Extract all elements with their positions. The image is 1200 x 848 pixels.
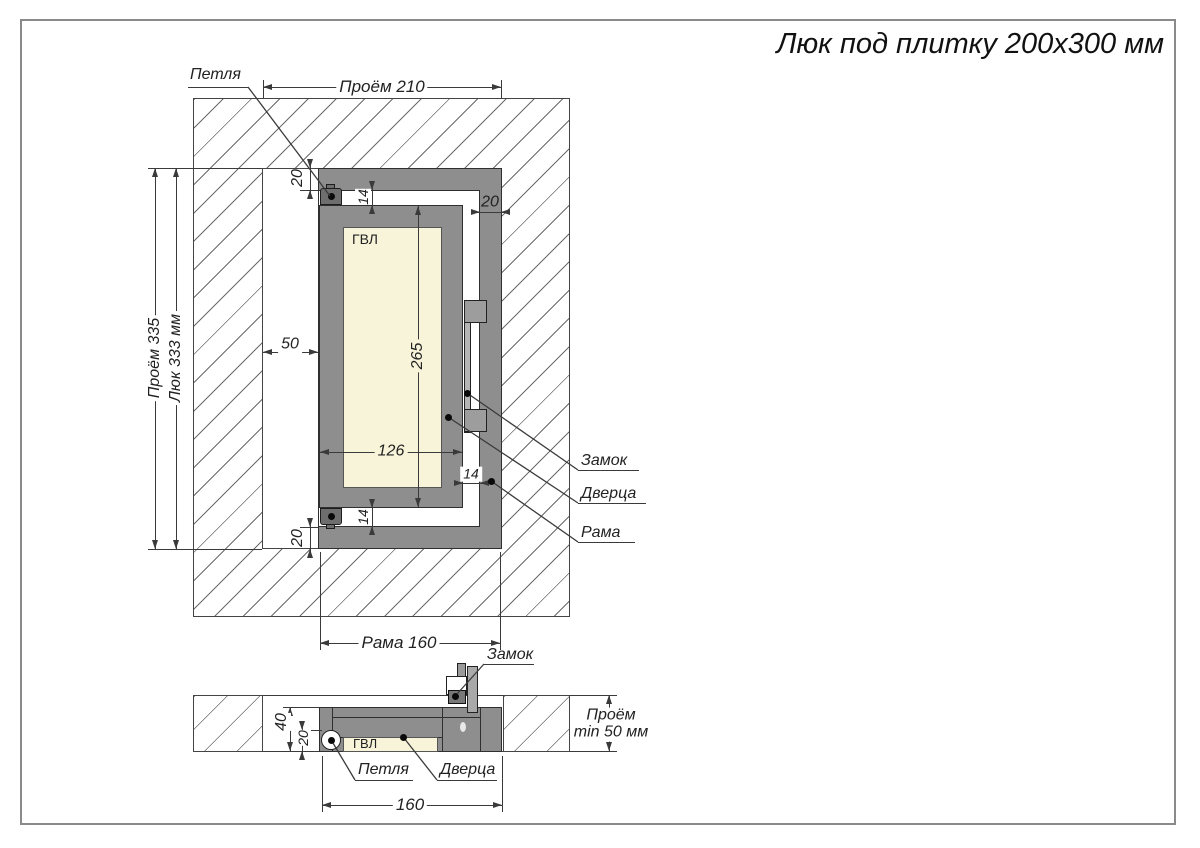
dim-arrow (299, 751, 305, 760)
dim-opening-depth-line1: Проём (583, 708, 638, 725)
drawing-title: Люк под плитку 200х300 мм (776, 28, 1164, 61)
section-detail-line (332, 717, 480, 718)
dim-arrow (173, 168, 179, 177)
lock-label-front: Замок (581, 452, 627, 470)
door-leader-dot (445, 414, 452, 421)
dim-arrow (369, 526, 375, 535)
hinge-label-section: Петля (358, 761, 409, 779)
dim-frame-profile: 20 (478, 195, 502, 212)
dim-arrow (307, 518, 313, 527)
dim-top-gap: 14 (355, 189, 371, 205)
dim-arrow (369, 205, 375, 214)
dim-arrow (415, 498, 421, 507)
ext-line (300, 527, 318, 528)
dim-arrow (263, 84, 272, 90)
dim-arrow (606, 695, 612, 704)
dim-arrow (152, 168, 158, 177)
ext-line (148, 168, 262, 169)
hinge-label-underline-section (355, 780, 413, 781)
dim-frame-width: Рама 160 (359, 634, 440, 652)
dim-arrow (307, 159, 313, 168)
dim-depth-total: 40 (273, 713, 291, 731)
section-hinge-dot (328, 737, 335, 744)
dim-arrow (415, 206, 421, 215)
lock-label-underline-section (484, 664, 534, 665)
dim-right-gap: 14 (460, 467, 482, 482)
dim-arrow (453, 449, 462, 455)
dim-arrow (299, 721, 305, 730)
dim-arrow (152, 540, 158, 549)
section-detail-line (480, 707, 481, 752)
dim-door-width: 126 (375, 444, 408, 461)
front-gvl-label: ГВЛ (352, 231, 378, 247)
frame-label-underline (578, 542, 635, 543)
door-label-underline (578, 503, 646, 504)
dim-top-offset: 20 (289, 169, 307, 187)
section-wall-right (503, 695, 570, 752)
hinge-top-pin (326, 184, 335, 189)
dim-left-gap: 50 (278, 337, 302, 354)
dim-arrow (322, 802, 331, 808)
dim-arrow (320, 640, 329, 646)
front-lock-block-top (464, 300, 487, 323)
dim-bottom-gap: 14 (355, 509, 371, 525)
dim-arrow (493, 802, 502, 808)
hinge-bottom-dot (328, 513, 335, 520)
hinge-top-dot (328, 193, 335, 200)
dim-opening-width: Проём 210 (336, 78, 427, 96)
ext-line (501, 80, 502, 98)
ext-line (502, 756, 503, 812)
section-lock-plate (467, 666, 478, 713)
front-lock-block-bottom (464, 409, 487, 432)
dim-arrow (287, 742, 293, 751)
lock-label-underline (578, 470, 639, 471)
lock-label-section: Замок (487, 646, 533, 664)
door-label-front: Дверца (581, 485, 636, 503)
ext-line (500, 552, 501, 650)
lock-leader-dot (464, 390, 471, 397)
ext-line (148, 549, 262, 550)
dim-arrow (606, 742, 612, 751)
ext-line (300, 190, 318, 191)
dim-opening-depth-line2: min 50 мм (571, 725, 651, 742)
dim-door-height: 265 (409, 340, 427, 373)
ext-line (320, 552, 321, 650)
dim-arrow (320, 449, 329, 455)
section-lock-dot (452, 693, 459, 700)
dim-section-frame-width: 160 (393, 796, 427, 814)
dim-door-depth: 20 (295, 730, 311, 746)
dim-bottom-offset: 20 (289, 529, 307, 547)
dim-arrow (369, 499, 375, 508)
dim-arrow (501, 209, 510, 215)
door-label-underline-section (437, 780, 497, 781)
section-lock-lever (457, 663, 466, 677)
door-label-section: Дверца (440, 761, 495, 779)
dim-arrow (173, 540, 179, 549)
hinge-bottom-pin (326, 524, 335, 529)
dim-arrow (307, 549, 313, 558)
door-leader-dot-section (400, 734, 407, 741)
frame-leader-dot (488, 478, 495, 485)
dim-arrow (309, 349, 318, 355)
dim-opening-height: Проём 335 (146, 315, 164, 401)
dim-arrow (263, 349, 272, 355)
dim-arrow (492, 84, 501, 90)
dim-arrow (307, 190, 313, 199)
hinge-label-front: Петля (190, 66, 241, 84)
frame-label-front: Рама (581, 524, 620, 542)
section-screw-hole (460, 722, 466, 732)
section-detail-line (442, 707, 443, 752)
section-gvl-label: ГВЛ (353, 736, 377, 751)
hinge-label-underline (188, 87, 248, 88)
section-wall-left (193, 695, 263, 752)
drawing-page: Люк под плитку 200х300 мм ГВЛ Проём 210 … (0, 0, 1200, 848)
dim-hatch-height: Люк 333 мм (167, 311, 185, 405)
